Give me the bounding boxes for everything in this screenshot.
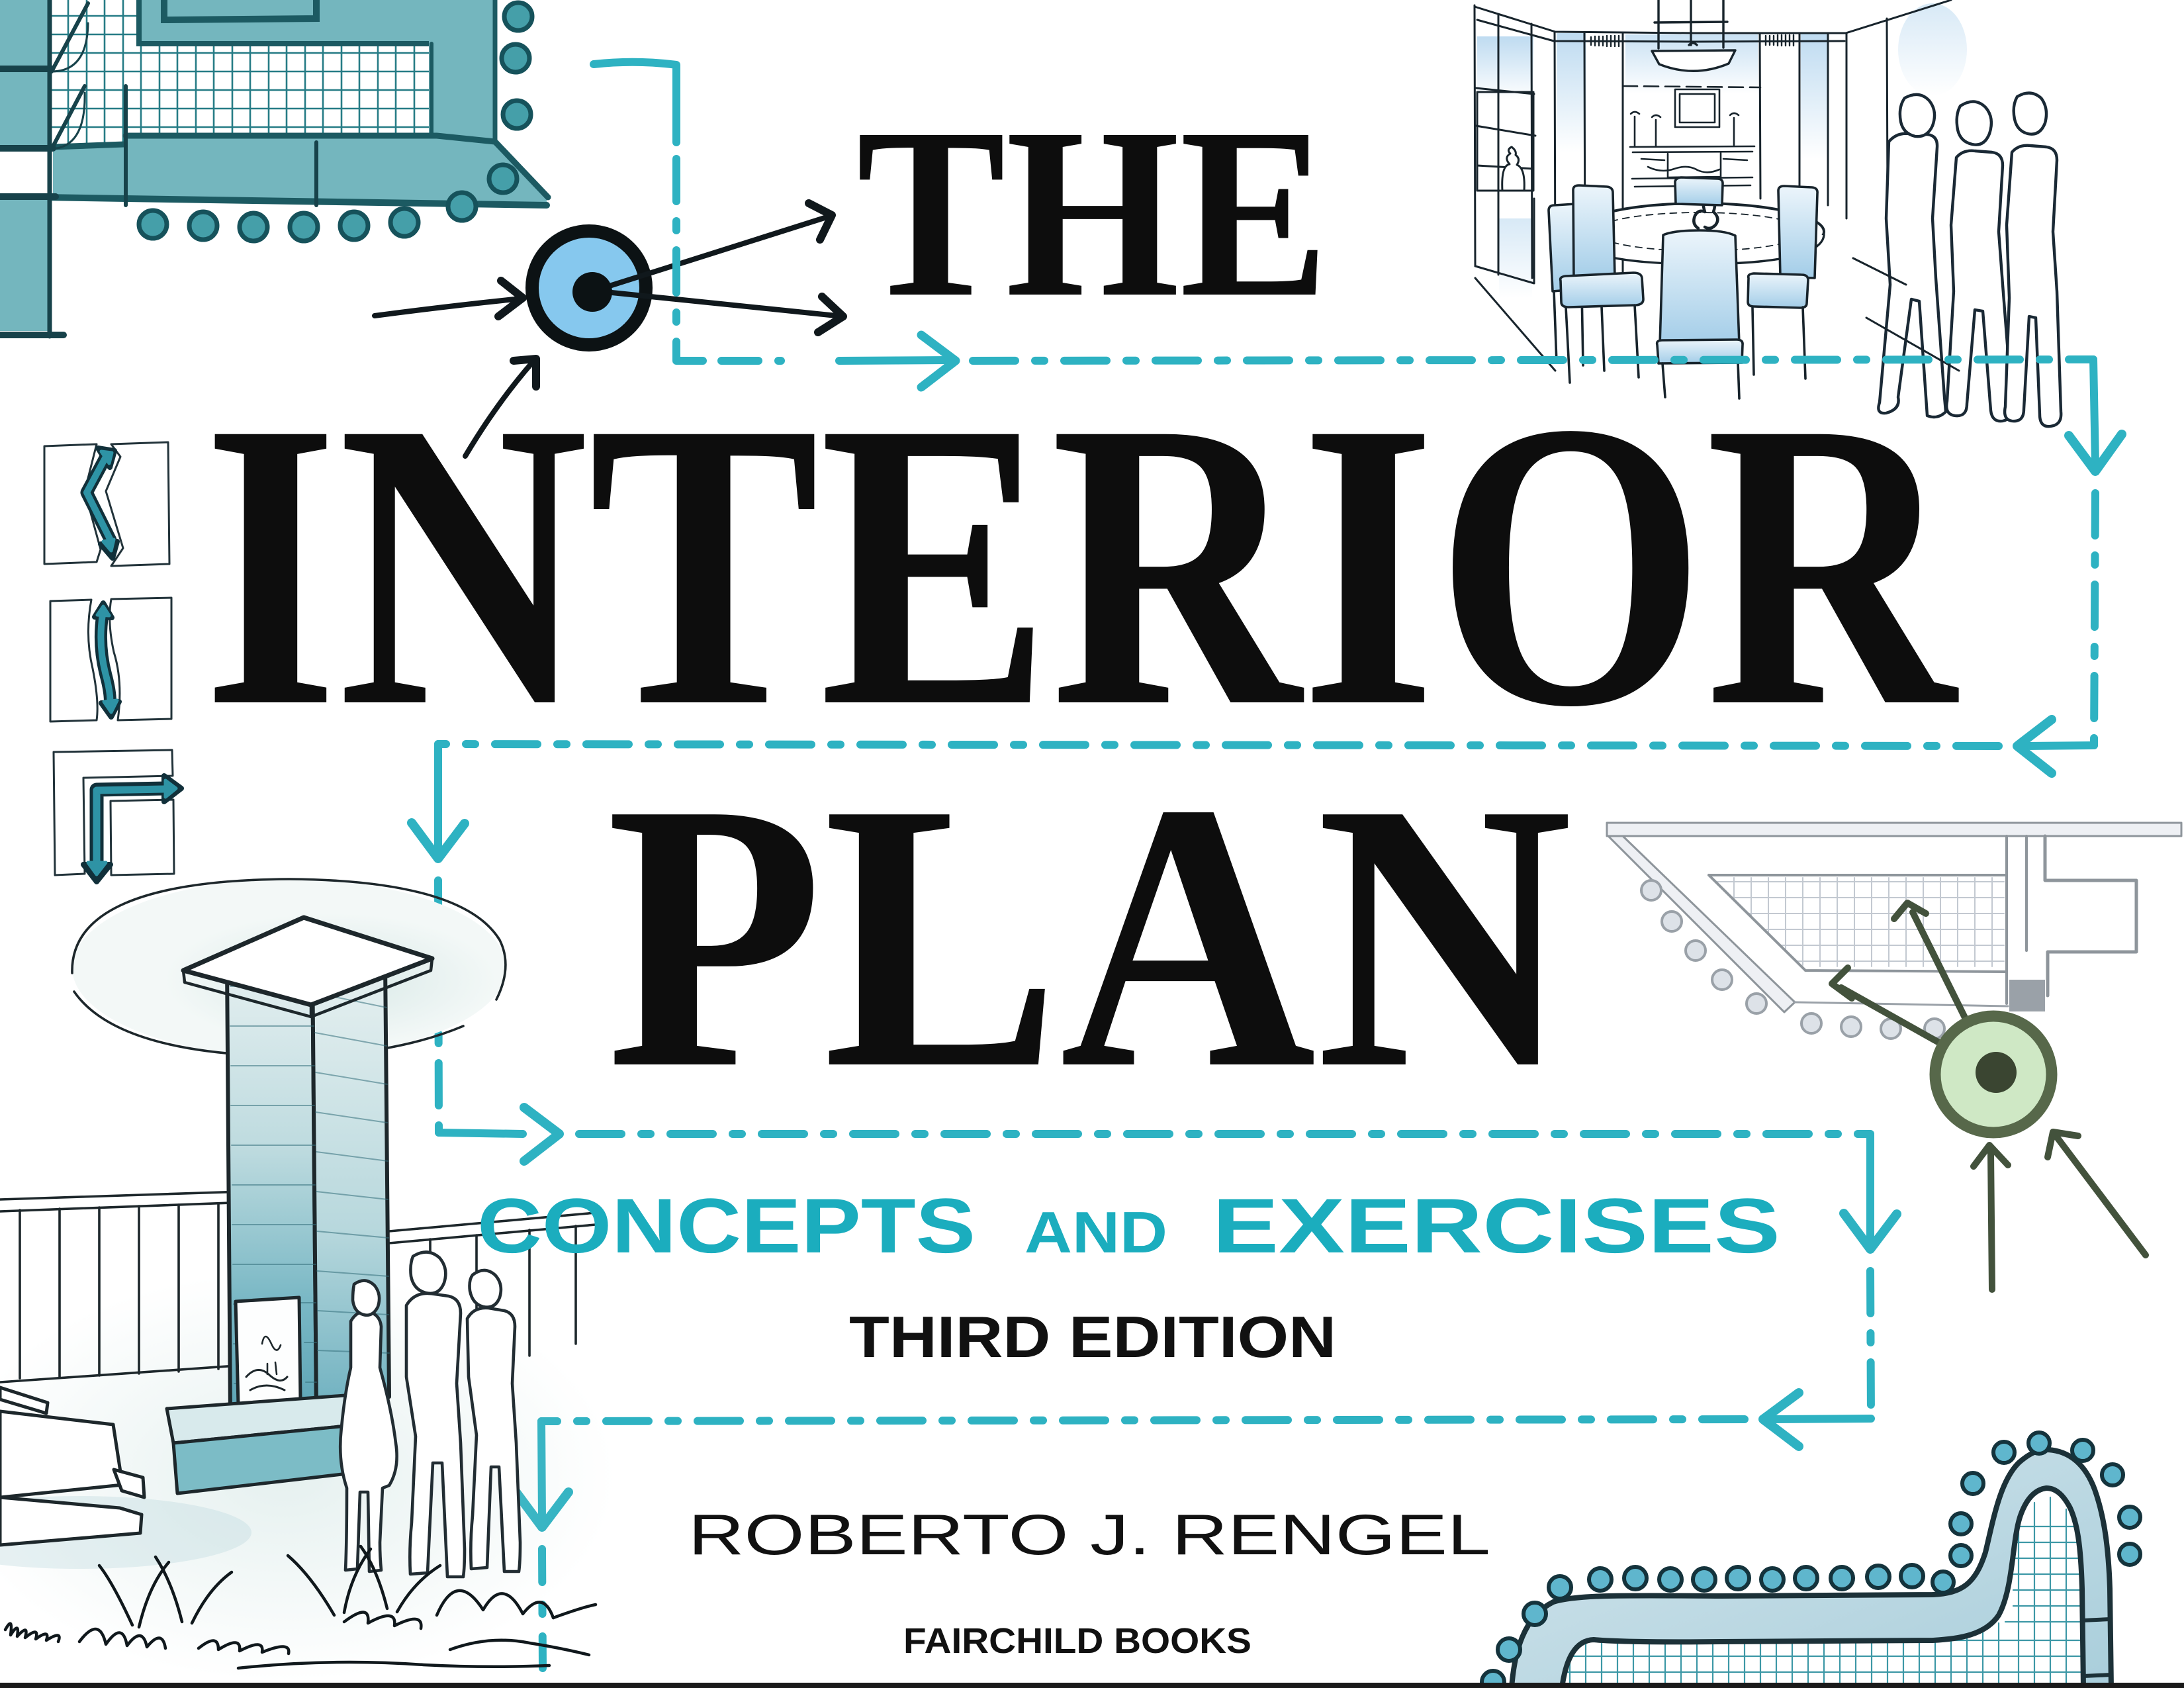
svg-text:INTERIOR: INTERIOR [203,337,1960,791]
svg-text:THE: THE [856,77,1329,348]
svg-text:FAIRCHILD BOOKS: FAIRCHILD BOOKS [903,1621,1251,1661]
svg-text:AND: AND [1024,1199,1167,1265]
svg-text:ROBERTO J. RENGEL: ROBERTO J. RENGEL [688,1503,1490,1567]
svg-text:THIRD EDITION: THIRD EDITION [849,1304,1336,1370]
svg-text:EXERCISES: EXERCISES [1212,1182,1780,1269]
svg-text:PLAN: PLAN [606,724,1572,1147]
svg-text:CONCEPTS: CONCEPTS [477,1182,976,1269]
